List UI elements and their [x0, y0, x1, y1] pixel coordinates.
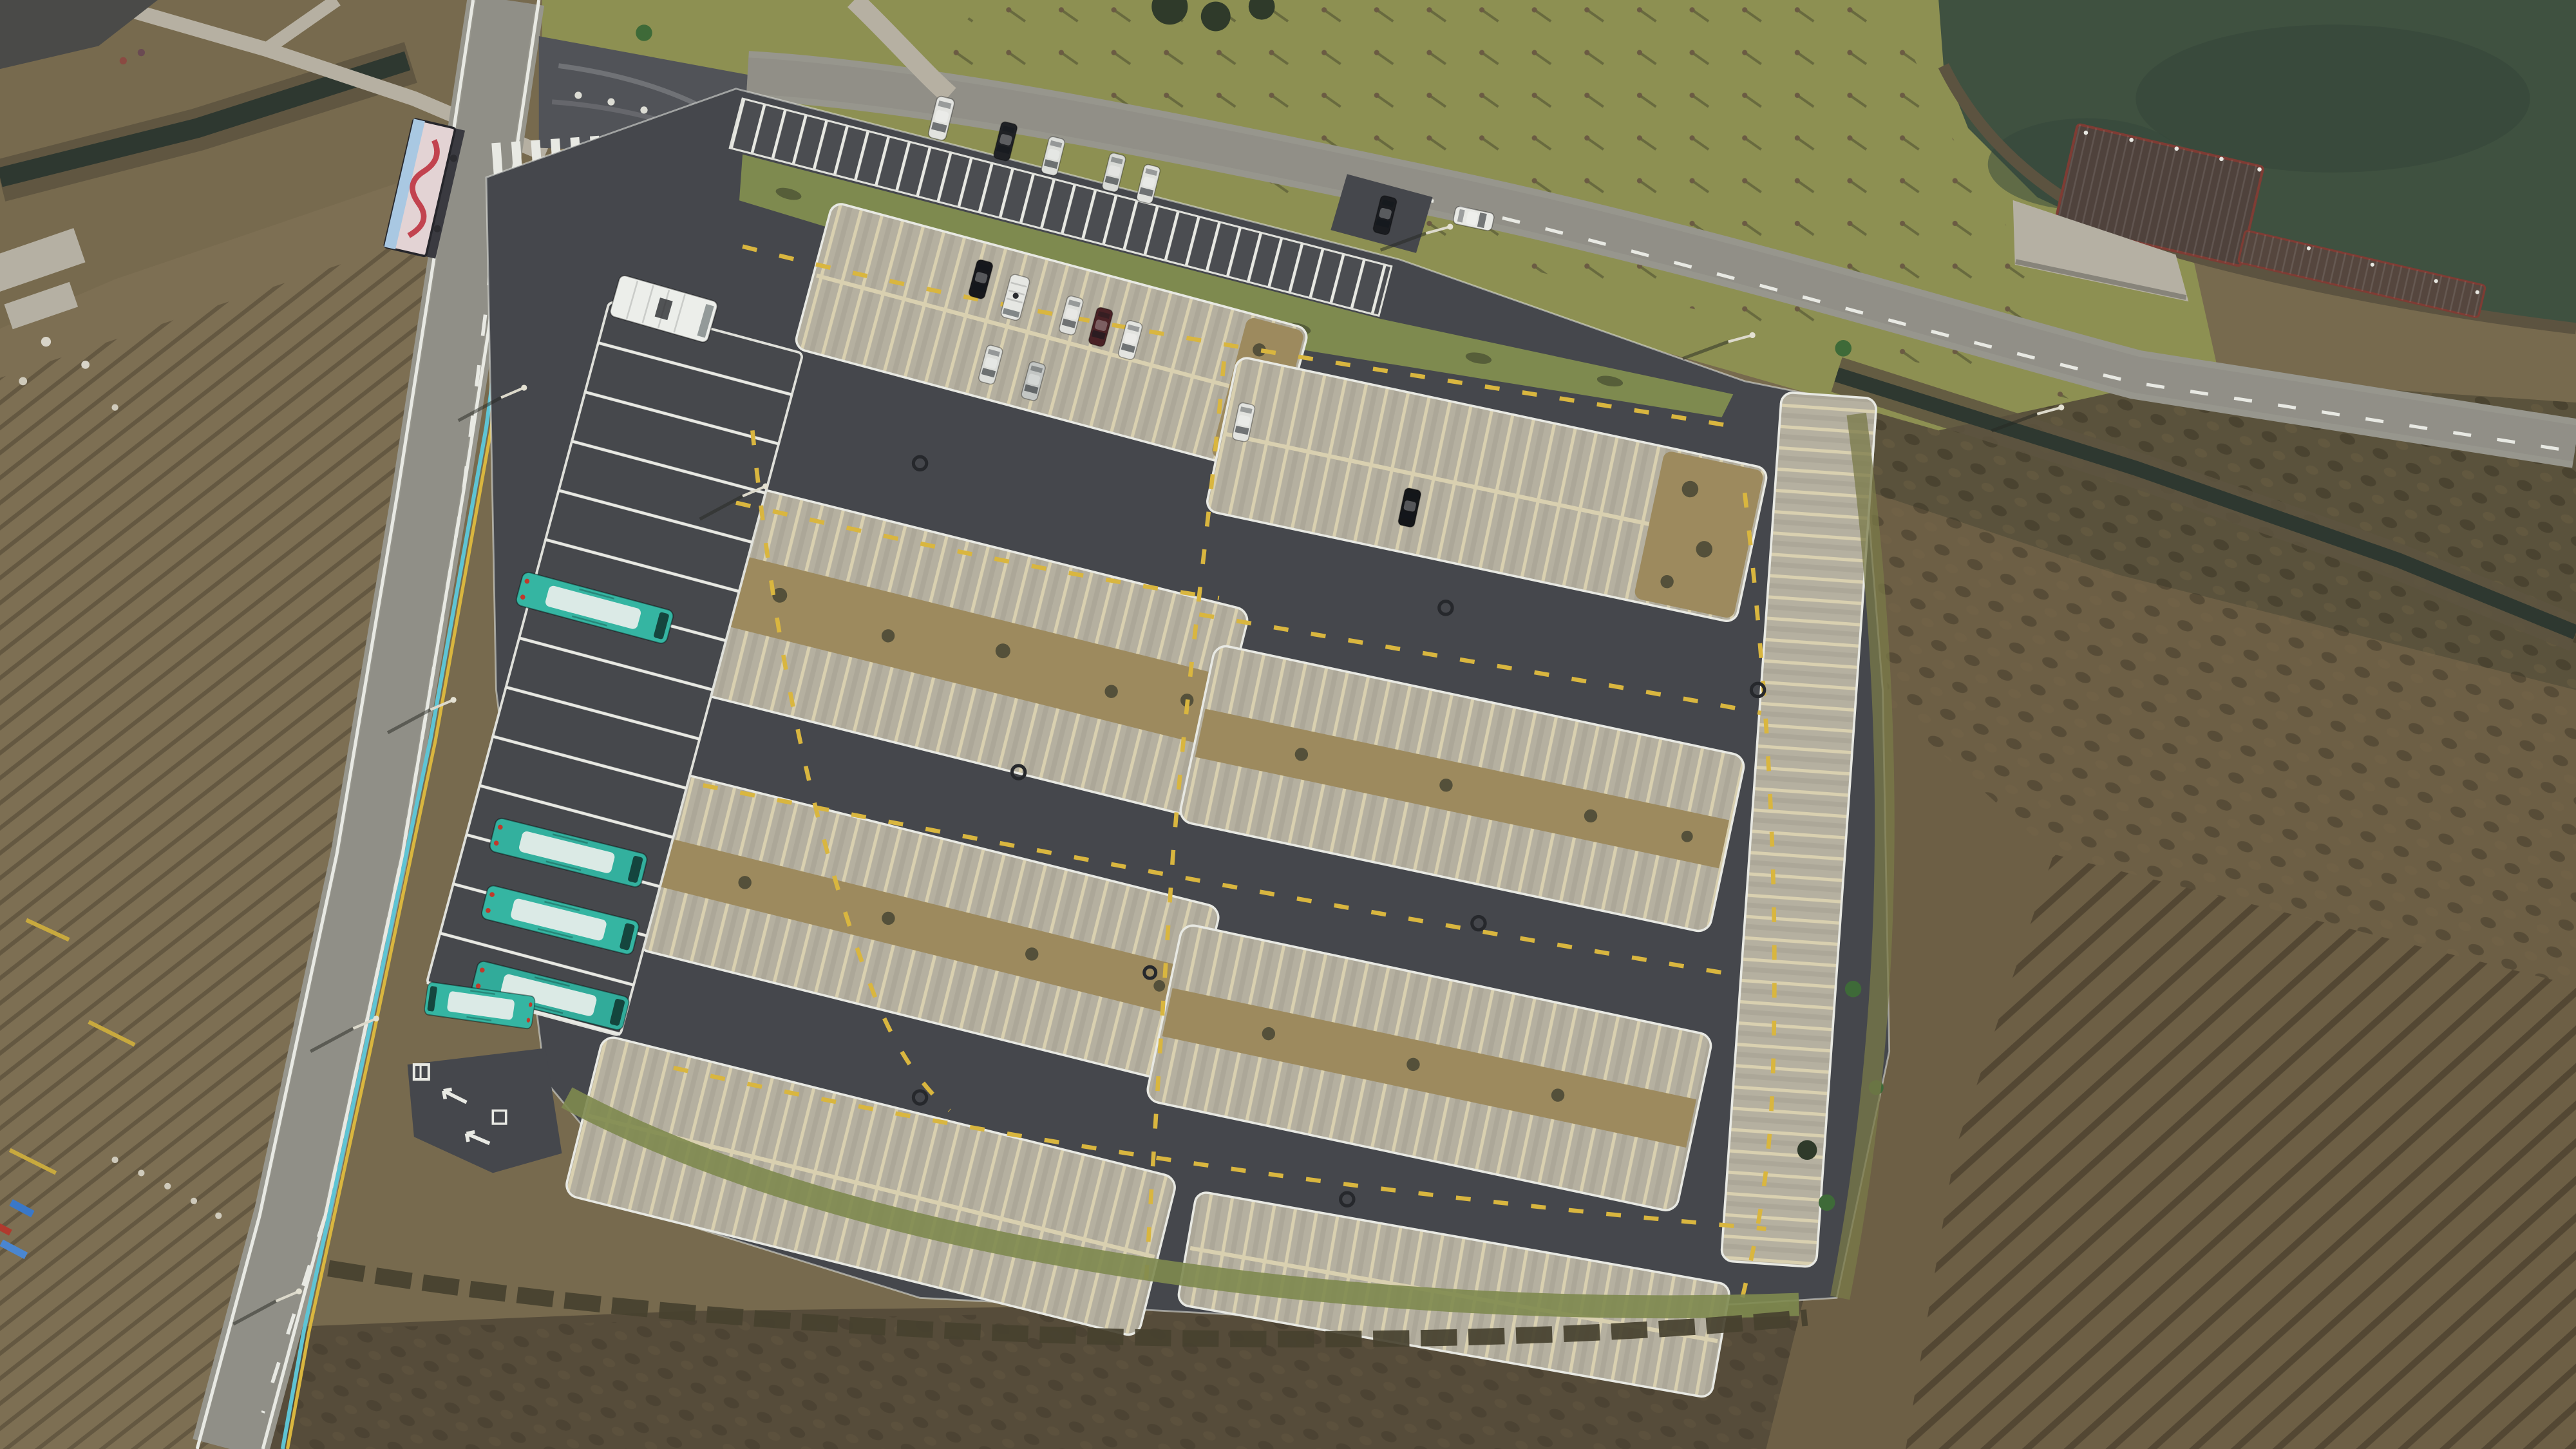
pedestrian-1	[120, 57, 127, 64]
aerial-photo-parking-lot	[0, 0, 2576, 1449]
pedestrian-2	[138, 49, 145, 56]
